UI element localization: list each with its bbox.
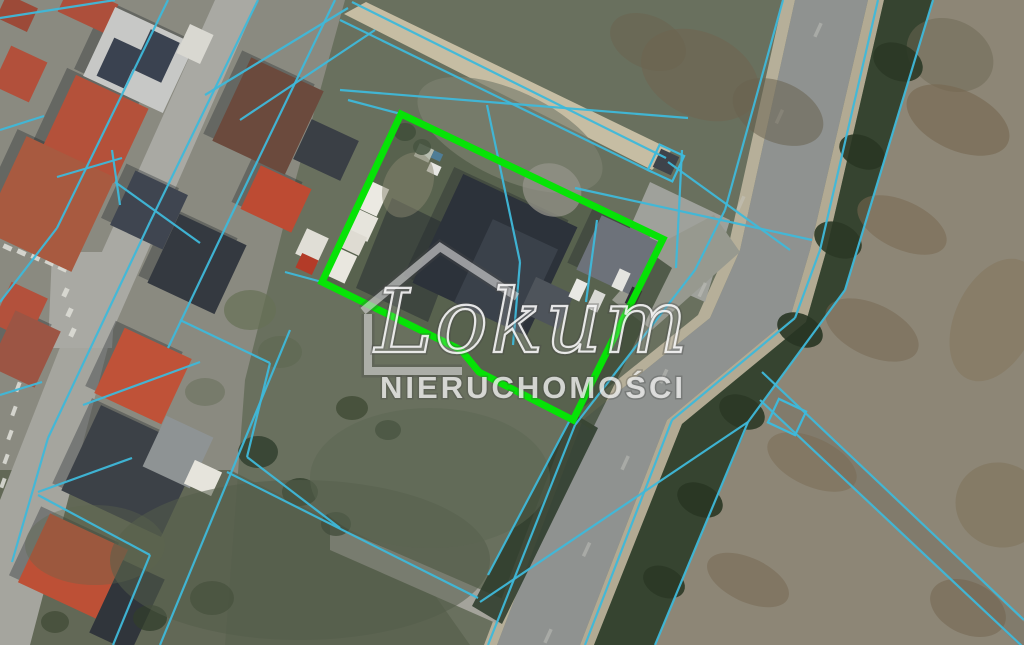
aerial-photo[interactable]: Lokum Lokum NIERUCHOMOŚCI bbox=[0, 0, 1024, 645]
vegetation-patch bbox=[25, 505, 165, 585]
watermark-subtitle: NIERUCHOMOŚCI bbox=[380, 369, 686, 405]
vegetation-patch bbox=[41, 611, 69, 633]
vegetation-patch bbox=[185, 378, 225, 406]
vegetation-patch bbox=[224, 290, 276, 330]
vegetation-patch bbox=[413, 139, 431, 155]
watermark: Lokum Lokum NIERUCHOMOŚCI bbox=[363, 247, 689, 405]
vegetation-patch bbox=[336, 396, 368, 420]
watermark-brand: Lokum bbox=[373, 270, 690, 373]
map-canvas: Lokum Lokum NIERUCHOMOŚCI bbox=[0, 0, 1024, 645]
